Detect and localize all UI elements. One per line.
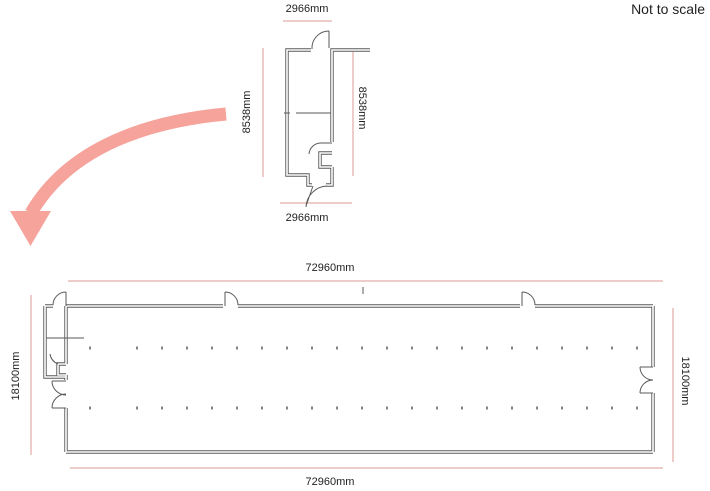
column-marks-row-top <box>89 347 638 350</box>
detail-right-dim-label: 8538mm <box>355 68 369 148</box>
transition-arrow-icon <box>10 114 226 246</box>
overall-top-dim-label: 72960mm <box>290 261 370 275</box>
detail-plan-doors <box>306 31 332 207</box>
column-marks-row-bottom <box>89 407 638 410</box>
floor-plan-page: Not to scale 2966mm 2966mm 8538mm 8538mm… <box>0 0 710 491</box>
detail-left-dim-label: 8538mm <box>240 72 254 152</box>
detail-bottom-dim-label: 2966mm <box>267 211 347 225</box>
overall-right-dim-label: 18100mm <box>678 341 692 421</box>
overall-left-dim-label: 18100mm <box>9 336 23 416</box>
dimension-lines <box>31 21 673 468</box>
overall-plan-doors <box>50 292 653 408</box>
overall-bottom-dim-label: 72960mm <box>290 475 370 489</box>
overall-plan-drawing <box>45 287 653 452</box>
detail-top-dim-label: 2966mm <box>267 2 347 16</box>
not-to-scale-label: Not to scale <box>595 1 705 17</box>
